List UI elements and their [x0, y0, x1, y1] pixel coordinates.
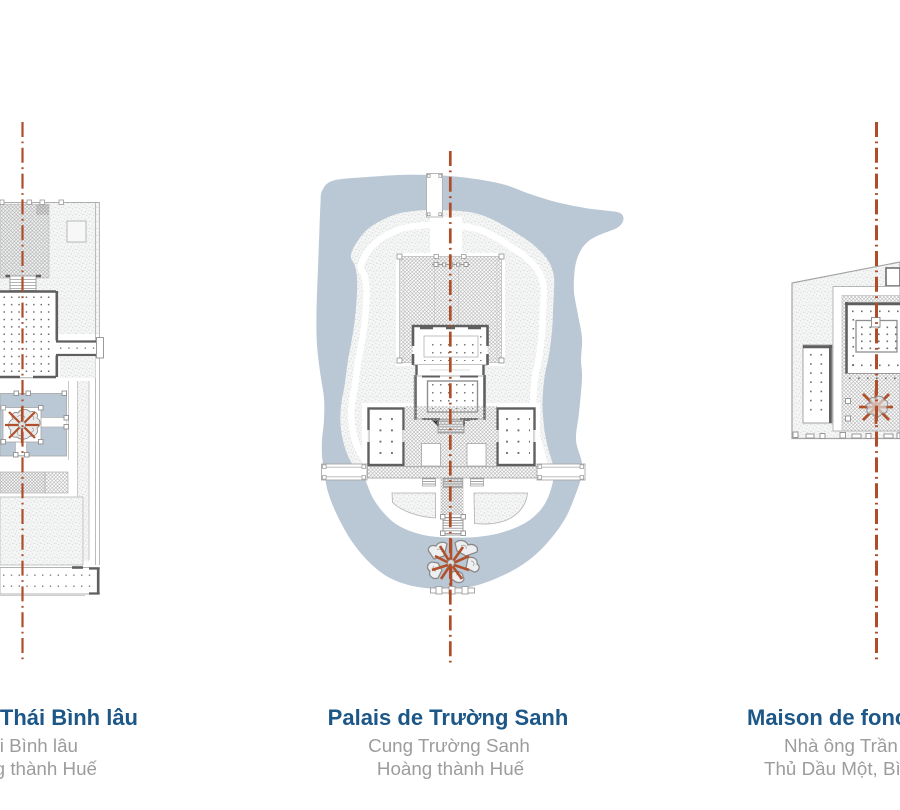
svg-text:Hoàng thành Huế: Hoàng thành Huế [377, 758, 525, 779]
svg-text:Cung Trường Sanh: Cung Trường Sanh [368, 735, 530, 756]
svg-text:Thủ Dầu Một, Bình Dương: Thủ Dầu Một, Bình Dương [764, 758, 900, 779]
svg-text:Belvédère de Thái Bình lâu: Belvédère de Thái Bình lâu [0, 705, 138, 730]
svg-text:Nhà ông Trần Công Vàng Phủ: Nhà ông Trần Công Vàng Phủ [784, 735, 900, 756]
svg-text:Maison de fonctionnaire: Maison de fonctionnaire [747, 705, 900, 730]
svg-text:Thái Bình lâu: Thái Bình lâu [0, 735, 78, 756]
svg-text:Hoàng thành Huế: Hoàng thành Huế [0, 758, 98, 779]
svg-text:Palais de Trường Sanh: Palais de Trường Sanh [328, 705, 569, 730]
